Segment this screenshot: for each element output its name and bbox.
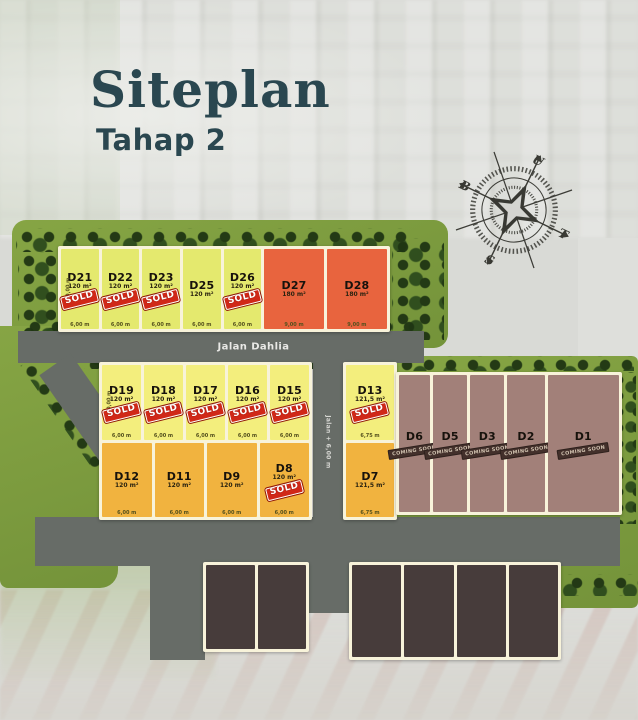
- lot-label: D23: [149, 272, 174, 283]
- compass-east-label: T: [556, 225, 572, 243]
- width-dimension: 6,00 m: [102, 433, 141, 439]
- width-dimension: 6,75 m: [346, 510, 394, 516]
- width-dimension: 9,00 m: [264, 322, 323, 328]
- lot-area: 180 m²: [282, 292, 306, 298]
- lot-row-upper: 20,00 mD19120 m²SOLD6,00 mD18120 m²SOLD6…: [102, 365, 309, 440]
- lot-label: D22: [108, 272, 133, 283]
- lot-label: D13: [357, 385, 382, 396]
- width-dimension: 6,00 m: [155, 510, 205, 516]
- lot-d16: D16120 m²SOLD6,00 m: [228, 365, 267, 440]
- lot-label: D15: [277, 385, 302, 396]
- lot-block: [206, 565, 255, 649]
- tree-line: [396, 356, 634, 371]
- width-dimension: 6,75 m: [346, 433, 394, 439]
- lot-area: 120 m²: [278, 397, 302, 403]
- sold-sticker: SOLD: [265, 479, 304, 501]
- width-dimension: 6,00 m: [102, 510, 152, 516]
- lot-label: D16: [235, 385, 260, 396]
- page-subtitle: Tahap 2: [96, 123, 331, 157]
- sold-sticker: SOLD: [350, 402, 389, 424]
- sold-sticker: SOLD: [141, 289, 180, 311]
- page-title: Siteplan: [90, 64, 331, 117]
- lot-area: 120 m²: [115, 483, 139, 489]
- lot-area: 120 m²: [68, 284, 92, 290]
- lot-label: D28: [344, 280, 369, 291]
- lot-label: D26: [230, 272, 255, 283]
- lot-area: 180 m²: [345, 292, 369, 298]
- width-dimension: 6,00 m: [61, 322, 99, 328]
- width-dimension: 6,00 m: [183, 322, 221, 328]
- lot-block: [352, 565, 401, 657]
- lot-d2: D2COMING SOON: [507, 375, 544, 512]
- road-label: Jalan Dahlia: [218, 342, 290, 353]
- road-bottom-left-spur: [150, 517, 205, 660]
- lot-label: D12: [114, 471, 139, 482]
- lot-d17: D17120 m²SOLD6,00 m: [186, 365, 225, 440]
- road-side: Jalan + 6,00 m: [313, 363, 343, 520]
- lot-block: [457, 565, 506, 657]
- lot-area: 120 m²: [194, 397, 218, 403]
- compass-south-label: S: [482, 251, 497, 268]
- lot-block-bottom-a: [203, 562, 309, 652]
- lot-block-bottom-b: [349, 562, 561, 660]
- width-dimension: 6,00 m: [144, 433, 183, 439]
- lot-label: D2: [517, 431, 534, 442]
- lot-d5: D5COMING SOON: [433, 375, 467, 512]
- lot-block-top: 20,00 mD21120 m²SOLD6,00 mD22120 m²SOLD6…: [58, 246, 390, 332]
- lot-label: D27: [282, 280, 307, 291]
- lot-area: 120 m²: [220, 483, 244, 489]
- width-dimension: 6,00 m: [224, 322, 262, 328]
- lot-d9: D9120 m²6,00 m: [207, 443, 257, 518]
- lot-block: [509, 565, 558, 657]
- lot-label: D1: [575, 431, 592, 442]
- sold-sticker: SOLD: [101, 289, 140, 311]
- lot-d15: D15120 m²SOLD6,00 m: [270, 365, 309, 440]
- lot-label: D9: [223, 471, 240, 482]
- compass-icon: U T S B: [452, 148, 576, 272]
- lot-d28: D28180 m²9,00 m: [327, 249, 387, 329]
- lot-label: D17: [193, 385, 218, 396]
- lot-area: 120 m²: [231, 284, 255, 290]
- status-badge: COMING SOON: [557, 442, 610, 460]
- sold-sticker: SOLD: [270, 402, 309, 424]
- lot-d8: D8120 m²SOLD6,00 m: [260, 443, 310, 518]
- sold-sticker: SOLD: [144, 402, 183, 424]
- lot-area: 120 m²: [109, 284, 133, 290]
- lot-label: D3: [479, 431, 496, 442]
- road-label: Jalan + 6,00 m: [325, 415, 332, 468]
- road-jalan-dahlia: Jalan Dahlia: [18, 331, 424, 363]
- lot-d21: 20,00 mD21120 m²SOLD6,00 m: [61, 249, 99, 329]
- lot-d6: D6COMING SOON: [399, 375, 430, 512]
- sold-sticker: SOLD: [223, 289, 262, 311]
- lot-row-lower: D12120 m²6,00 mD11120 m²6,00 mD9120 m²6,…: [102, 443, 309, 518]
- sold-sticker: SOLD: [228, 402, 267, 424]
- width-dimension: 6,00 m: [142, 322, 180, 328]
- lot-block-right: D6COMING SOOND5COMING SOOND3COMING SOOND…: [396, 372, 622, 515]
- lot-area: 120 m²: [110, 397, 134, 403]
- width-dimension: 6,00 m: [260, 510, 310, 516]
- lot-label: D11: [167, 471, 192, 482]
- lot-label: D5: [442, 431, 459, 442]
- sold-sticker: SOLD: [186, 402, 225, 424]
- road-bottom-mid-spur: [305, 517, 349, 613]
- siteplan-poster: Siteplan Tahap 2 U T: [0, 0, 638, 720]
- lot-d27: D27180 m²9,00 m: [264, 249, 323, 329]
- lot-d18: D18120 m²SOLD6,00 m: [144, 365, 183, 440]
- width-dimension: 6,00 m: [102, 322, 140, 328]
- lot-area: 120 m²: [168, 483, 192, 489]
- lot-label: D19: [109, 385, 134, 396]
- compass-west-label: B: [456, 176, 473, 195]
- status-badge: COMING SOON: [499, 442, 552, 460]
- compass-north-label: U: [530, 151, 547, 170]
- lot-d7: D7121,5 m²6,75 m: [346, 443, 394, 518]
- lot-d25: D25120 m²6,00 m: [183, 249, 221, 329]
- lot-area: 120 m²: [190, 292, 214, 298]
- width-dimension: 9,00 m: [327, 322, 387, 328]
- width-dimension: 6,00 m: [270, 433, 309, 439]
- lot-area: 120 m²: [149, 284, 173, 290]
- lot-block: [258, 565, 307, 649]
- width-dimension: 6,00 m: [228, 433, 267, 439]
- lot-label: D6: [406, 431, 423, 442]
- lot-d23: D23120 m²SOLD6,00 m: [142, 249, 180, 329]
- header: Siteplan Tahap 2: [90, 64, 331, 157]
- lot-d12: D12120 m²6,00 m: [102, 443, 152, 518]
- lot-area: 120 m²: [152, 397, 176, 403]
- lot-block: [404, 565, 453, 657]
- lot-d1: D1COMING SOON: [548, 375, 619, 512]
- lot-label: D8: [276, 463, 293, 474]
- lot-d11: D11120 m²6,00 m: [155, 443, 205, 518]
- lot-block-column: D13121,5 m²SOLD6,75 mD7121,5 m²6,75 m: [343, 362, 397, 520]
- lot-area: 120 m²: [273, 475, 297, 481]
- width-dimension: 6,00 m: [207, 510, 257, 516]
- width-dimension: 6,00 m: [186, 433, 225, 439]
- lot-d22: D22120 m²SOLD6,00 m: [102, 249, 140, 329]
- lot-d13: D13121,5 m²SOLD6,75 m: [346, 365, 394, 440]
- lot-area: 120 m²: [236, 397, 260, 403]
- lot-label: D25: [189, 280, 214, 291]
- lot-d26: D26120 m²SOLD6,00 m: [224, 249, 262, 329]
- lot-d19: 20,00 mD19120 m²SOLD6,00 m: [102, 365, 141, 440]
- lot-d3: D3COMING SOON: [470, 375, 504, 512]
- lot-area: 121,5 m²: [355, 483, 385, 489]
- lot-block-middle: 20,00 mD19120 m²SOLD6,00 mD18120 m²SOLD6…: [99, 362, 312, 520]
- lot-label: D18: [151, 385, 176, 396]
- lot-label: D7: [361, 471, 378, 482]
